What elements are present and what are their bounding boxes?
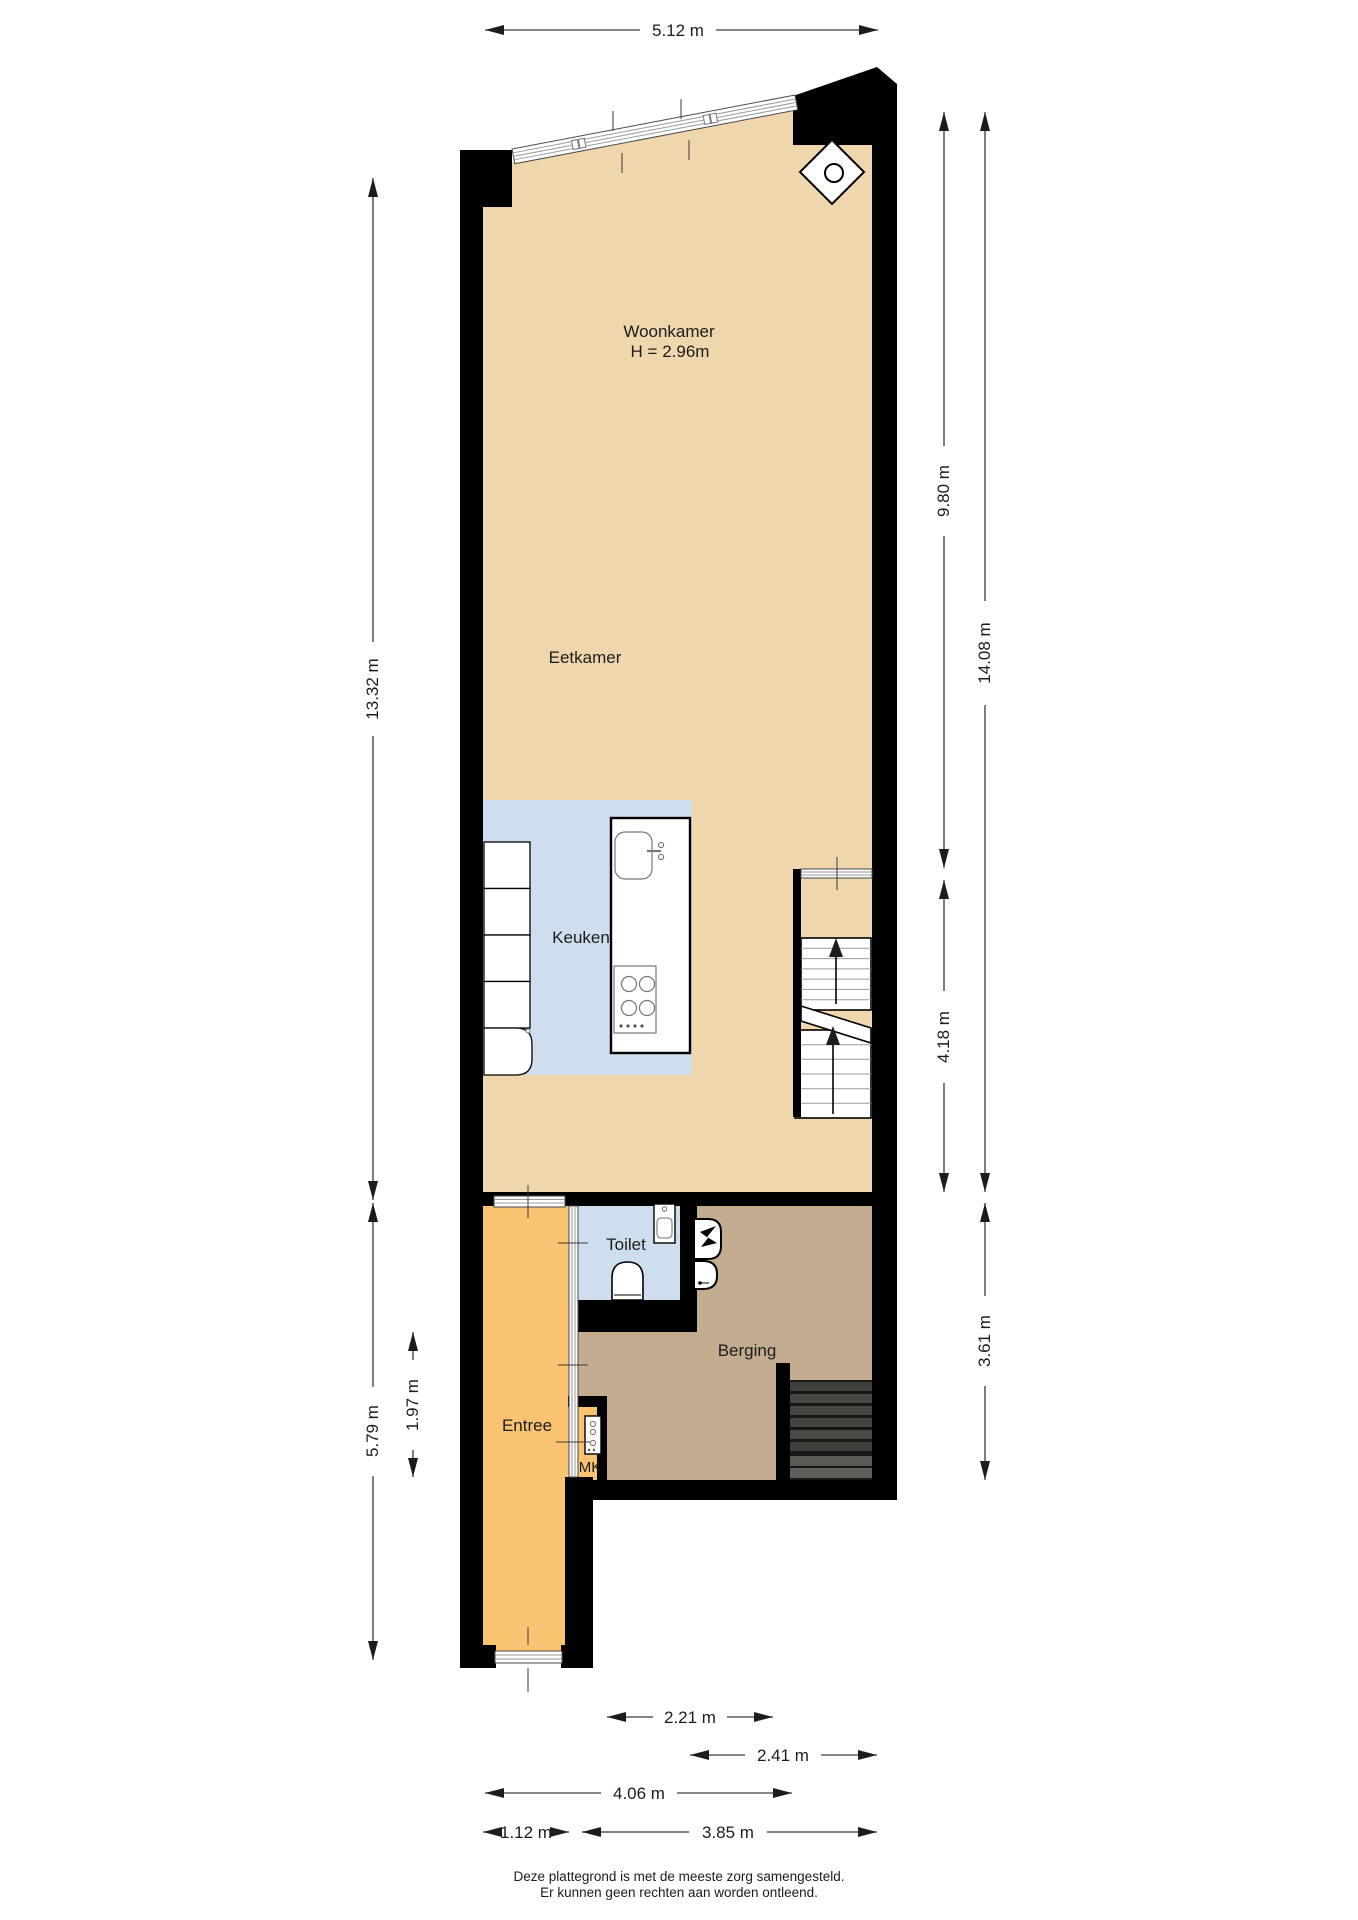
washbasin-icon	[654, 1204, 675, 1243]
dimension-bottom-lower-width: 3.85 m	[582, 1823, 877, 1842]
window-mullion	[571, 140, 579, 150]
dimension-right-stair-height: 4.18 m	[934, 880, 953, 1192]
dimension-label: 3.61 m	[975, 1315, 994, 1367]
front-door-window	[495, 1651, 562, 1663]
window-mullion	[578, 138, 586, 148]
dimension-label: 1.97 m	[403, 1379, 422, 1431]
dimension-bottom-upper-width: 4.06 m	[485, 1784, 792, 1803]
wall-toilet-bottom	[570, 1300, 697, 1332]
dimension-left-main-height: 13.32 m	[363, 178, 382, 1200]
wall-left	[460, 205, 483, 1668]
dimension-label: 3.85 m	[702, 1823, 754, 1842]
wall-front-door-jamb-left	[460, 1645, 496, 1668]
dimension-label: 14.08 m	[975, 622, 994, 683]
room-entree-floor-lower	[483, 1477, 565, 1651]
glass-partition-entree-top	[494, 1196, 565, 1207]
wall-berging-bottom	[570, 1480, 897, 1500]
dimension-right-lower-height: 3.61 m	[975, 1203, 994, 1480]
water-unit-icon	[694, 1261, 717, 1289]
window-mullion	[710, 113, 718, 123]
room-label-berging: Berging	[718, 1341, 777, 1360]
wall-top-right-block	[793, 67, 897, 145]
dimension-label: 9.80 m	[934, 465, 953, 517]
room-label-entree: Entree	[502, 1416, 552, 1435]
wall-basement-stair-left	[776, 1363, 790, 1480]
floorplan-canvas: 5.12 m 13.32 m 5.79 m 1.97 m 9.80 m 4.18…	[0, 0, 1358, 1920]
footer-disclaimer-line2: Er kunnen geen rechten aan worden ontlee…	[540, 1885, 818, 1900]
dimension-label: 4.06 m	[613, 1784, 665, 1803]
dimension-label: 5.79 m	[363, 1405, 382, 1457]
room-entree-floor-upper	[483, 1206, 569, 1477]
dimension-entree-inner-height: 1.97 m	[403, 1332, 422, 1477]
kitchen-island	[611, 818, 690, 1053]
dimension-label: 2.21 m	[664, 1708, 716, 1727]
kitchen-cabinets	[484, 842, 532, 1075]
meter-panel-icon	[585, 1416, 601, 1454]
floorplan-page: 5.12 m 13.32 m 5.79 m 1.97 m 9.80 m 4.18…	[0, 0, 1358, 1920]
kitchen-appliance	[484, 1028, 532, 1075]
dimension-label: 2.41 m	[757, 1746, 809, 1765]
dimension-bottom-entree-width: 1.12 m	[483, 1823, 569, 1842]
room-label-woonkamer: Woonkamer	[623, 322, 715, 341]
room-height-note: H = 2.96m	[631, 342, 710, 361]
dimension-bottom-toilet-width: 2.21 m	[607, 1708, 773, 1727]
staircase-down-dark	[790, 1380, 872, 1480]
dimension-label: 1.12 m	[500, 1823, 552, 1842]
wall-stairwell-left	[793, 869, 801, 1117]
dimension-right-total-height: 14.08 m	[975, 112, 994, 1192]
wall-front-door-jamb-right	[561, 1645, 593, 1668]
dimension-label: 4.18 m	[934, 1011, 953, 1063]
room-label-toilet: Toilet	[606, 1235, 646, 1254]
wall-right	[872, 145, 897, 1500]
dimension-label: 13.32 m	[363, 658, 382, 719]
window-mullion	[703, 114, 711, 124]
dimension-left-lower-height: 5.79 m	[363, 1203, 382, 1660]
boiler-icon	[694, 1219, 721, 1259]
dimension-top-width: 5.12 m	[485, 21, 878, 40]
room-label-eetkamer: Eetkamer	[549, 648, 622, 667]
room-label-keuken: Keuken	[552, 928, 610, 947]
glass-partition-entree-right	[569, 1206, 578, 1477]
wall-entree-right-lower	[565, 1477, 593, 1668]
dimension-label: 5.12 m	[652, 21, 704, 40]
footer-disclaimer-line1: Deze plattegrond is met de meeste zorg s…	[514, 1869, 845, 1884]
dimension-right-upper-height: 9.80 m	[934, 112, 953, 868]
stove-icon	[614, 966, 656, 1033]
dimension-bottom-berging-width: 2.41 m	[690, 1746, 877, 1765]
toilet-icon	[612, 1262, 643, 1300]
room-label-meterkast: MK	[579, 1459, 602, 1476]
wall-top-left-block	[460, 150, 512, 207]
